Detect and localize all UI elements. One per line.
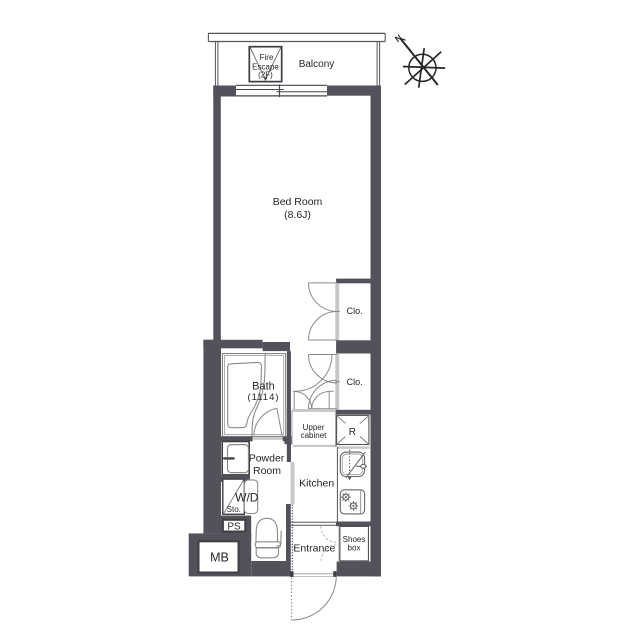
- svg-text:Sto.: Sto.: [227, 505, 241, 514]
- svg-text:PS: PS: [227, 521, 241, 532]
- svg-text:Bed Room: Bed Room: [273, 196, 323, 208]
- svg-text:Entrance: Entrance: [293, 542, 335, 554]
- svg-text:box: box: [348, 544, 361, 553]
- svg-text:Powder: Powder: [249, 453, 285, 465]
- svg-text:Bath: Bath: [252, 380, 275, 392]
- svg-text:Balcony: Balcony: [299, 59, 335, 70]
- svg-text:Kitchen: Kitchen: [299, 478, 334, 490]
- svg-text:(1114): (1114): [247, 392, 279, 403]
- svg-text:Clo.: Clo.: [347, 306, 363, 316]
- svg-text:W/D: W/D: [235, 491, 259, 505]
- svg-text:cabinet: cabinet: [301, 431, 328, 440]
- svg-text:Clo.: Clo.: [347, 377, 363, 387]
- svg-text:Room: Room: [253, 465, 281, 477]
- svg-text:R: R: [349, 427, 356, 438]
- svg-text:(8.6J): (8.6J): [284, 209, 311, 221]
- svg-text:(2F): (2F): [258, 71, 273, 80]
- svg-text:Fire: Fire: [260, 53, 274, 62]
- svg-text:MB: MB: [210, 551, 229, 565]
